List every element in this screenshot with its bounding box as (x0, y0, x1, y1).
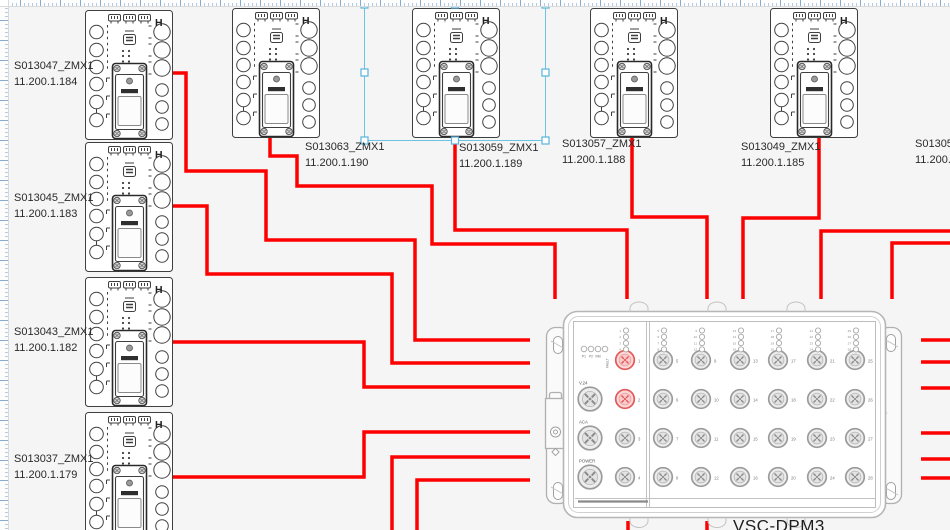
port-led (699, 328, 704, 333)
port-led-number: 28 (848, 348, 852, 352)
port-led (853, 328, 858, 333)
port-led-number: 17 (771, 329, 775, 333)
cable[interactable] (392, 457, 530, 530)
device-name: S013063_ZMX1 (305, 139, 385, 155)
device-ip: 11.200.1.183 (14, 206, 94, 222)
device-name: S013045_ZMX1 (14, 190, 94, 206)
port-led (738, 341, 743, 346)
port-led-number: 21 (810, 329, 814, 333)
port-number: 17 (791, 358, 796, 363)
cable[interactable] (632, 138, 707, 299)
port-led (853, 334, 858, 339)
status-led-label: RM (596, 355, 601, 359)
port-number: 20 (791, 475, 796, 480)
port-led (661, 334, 666, 339)
dpm-tab (708, 518, 726, 528)
zmx-module[interactable] (771, 9, 858, 138)
device-label[interactable]: S013063_ZMX111.200.1.190 (305, 139, 385, 171)
port-led-number: 16 (733, 348, 737, 352)
device-label[interactable]: S013057_ZMX111.200.1.188 (562, 136, 642, 168)
cable[interactable] (892, 243, 950, 299)
status-led (581, 346, 587, 352)
port-number: 28 (868, 475, 873, 480)
diagram-canvas[interactable]: H (0, 0, 950, 530)
device-label[interactable]: S013049_ZMX111.200.1.185 (741, 139, 821, 171)
device-ip: 11.200.1.190 (305, 155, 385, 171)
port-led (699, 341, 704, 346)
port-led (699, 334, 704, 339)
port-number: 15 (753, 436, 758, 441)
port-led (815, 347, 820, 352)
port-led (776, 334, 781, 339)
port-number: 26 (868, 397, 873, 402)
status-led-label: P2 (589, 355, 593, 359)
device-ip: 11.200.1.179 (14, 467, 94, 483)
status-led-label: FAULT (606, 358, 610, 368)
port-led-number: 23 (810, 341, 814, 345)
port-led-number: 13 (733, 329, 737, 333)
port-led (776, 347, 781, 352)
dpm-body (564, 312, 886, 518)
diagram-svg: H (0, 0, 950, 530)
zmx-module[interactable] (86, 11, 173, 140)
port-number: 10 (714, 397, 719, 402)
device-ip: 11.200.1 (915, 152, 950, 168)
port-led-number: 10 (694, 335, 698, 339)
cable[interactable] (172, 432, 530, 477)
dpm-aux-label: POWER (579, 459, 595, 464)
device-name: S013049_ZMX1 (741, 139, 821, 155)
port-led (623, 347, 628, 352)
port-number: 22 (830, 397, 835, 402)
device-name: S013043_ZMX1 (14, 324, 94, 340)
port-led (815, 328, 820, 333)
port-led (776, 328, 781, 333)
selection-handle-se[interactable] (542, 137, 549, 144)
port-number: 23 (830, 436, 835, 441)
device-name: S013047_ZMX1 (14, 58, 94, 74)
port-number: 19 (791, 436, 796, 441)
port-led (738, 328, 743, 333)
port-led (738, 334, 743, 339)
port-led (776, 341, 781, 346)
port-led-number: 24 (810, 348, 814, 352)
port-led (815, 341, 820, 346)
dpm-tab (708, 302, 726, 312)
port-led-number: 12 (694, 348, 698, 352)
selection-handle-e[interactable] (542, 69, 549, 76)
ruler-corner (0, 0, 9, 7)
port-led-number: 26 (848, 335, 852, 339)
zmx-module[interactable] (86, 278, 173, 407)
device-ip: 11.200.1.185 (741, 155, 821, 171)
port-number: 27 (868, 436, 873, 441)
device-label[interactable]: S013045_ZMX111.200.1.183 (14, 190, 94, 222)
device-label[interactable]: S013059_ZMX111.200.1.189 (459, 140, 539, 172)
dpm-aux-label: V.24 (579, 381, 588, 386)
port-led-number: 14 (733, 335, 737, 339)
port-led (623, 334, 628, 339)
zmx-module[interactable] (86, 143, 173, 272)
device-ip: 11.200.1.184 (14, 74, 94, 90)
dpm-aux-label: ACA (579, 420, 588, 425)
zmx-module[interactable] (591, 9, 678, 138)
dpm-device[interactable]: P1 P2 RM FAULT 1234567891011121314151617… (546, 302, 902, 530)
device-name: S013037_ZMX1 (14, 451, 94, 467)
device-ip: 11.200.1.189 (459, 156, 539, 172)
dpm-tab (787, 302, 805, 312)
status-led (595, 346, 601, 352)
device-ip: 11.200.1.188 (562, 152, 642, 168)
port-led-number: 18 (771, 335, 775, 339)
device-name: S013057_ZMX1 (562, 136, 642, 152)
port-number: 14 (753, 397, 758, 402)
device-label[interactable]: S013037_ZMX111.200.1.179 (14, 451, 94, 483)
port-number: 24 (830, 475, 835, 480)
cable[interactable] (417, 480, 530, 530)
port-number: 13 (753, 358, 758, 363)
port-led-number: 25 (848, 329, 852, 333)
port-number: 12 (714, 475, 719, 480)
selection-handle-s[interactable] (452, 137, 459, 144)
device-name: S013053 (915, 136, 950, 152)
device-name: S013059_ZMX1 (459, 140, 539, 156)
device-label[interactable]: S013043_ZMX111.200.1.182 (14, 324, 94, 356)
port-led (661, 347, 666, 352)
port-number: 25 (868, 358, 873, 363)
zmx-module[interactable] (413, 9, 500, 138)
port-led (623, 341, 628, 346)
status-led (602, 346, 608, 352)
ruler-horizontal (0, 0, 950, 7)
port-led (699, 347, 704, 352)
port-led (853, 347, 858, 352)
port-number: 18 (791, 397, 796, 402)
port-led (853, 341, 858, 346)
port-number: 21 (830, 358, 835, 363)
cable[interactable] (821, 231, 950, 299)
device-label[interactable]: S01305311.200.1 (915, 136, 950, 168)
port-led (661, 328, 666, 333)
status-led-label: P1 (582, 355, 586, 359)
port-led-number: 11 (694, 341, 697, 345)
port-number: 16 (753, 475, 758, 480)
port-led-number: 22 (810, 335, 814, 339)
port-led-number: 20 (771, 348, 775, 352)
port-led-number: 27 (848, 341, 852, 345)
port-led-number: 19 (771, 341, 775, 345)
dpm-tab (630, 518, 648, 528)
zmx-module[interactable] (86, 413, 173, 530)
port-led (661, 341, 666, 346)
dpm-title: VSC-DPM3 (733, 517, 825, 530)
port-led (815, 334, 820, 339)
port-led (623, 328, 628, 333)
dpm-tab (630, 302, 648, 312)
zmx-module[interactable] (233, 9, 320, 138)
port-led (738, 347, 743, 352)
device-ip: 11.200.1.182 (14, 340, 94, 356)
device-label[interactable]: S013047_ZMX111.200.1.184 (14, 58, 94, 90)
port-led-number: 15 (733, 341, 737, 345)
ruler-vertical (0, 0, 9, 530)
status-led (588, 346, 594, 352)
selection-handle-w[interactable] (361, 69, 368, 76)
port-number: 11 (714, 436, 719, 441)
